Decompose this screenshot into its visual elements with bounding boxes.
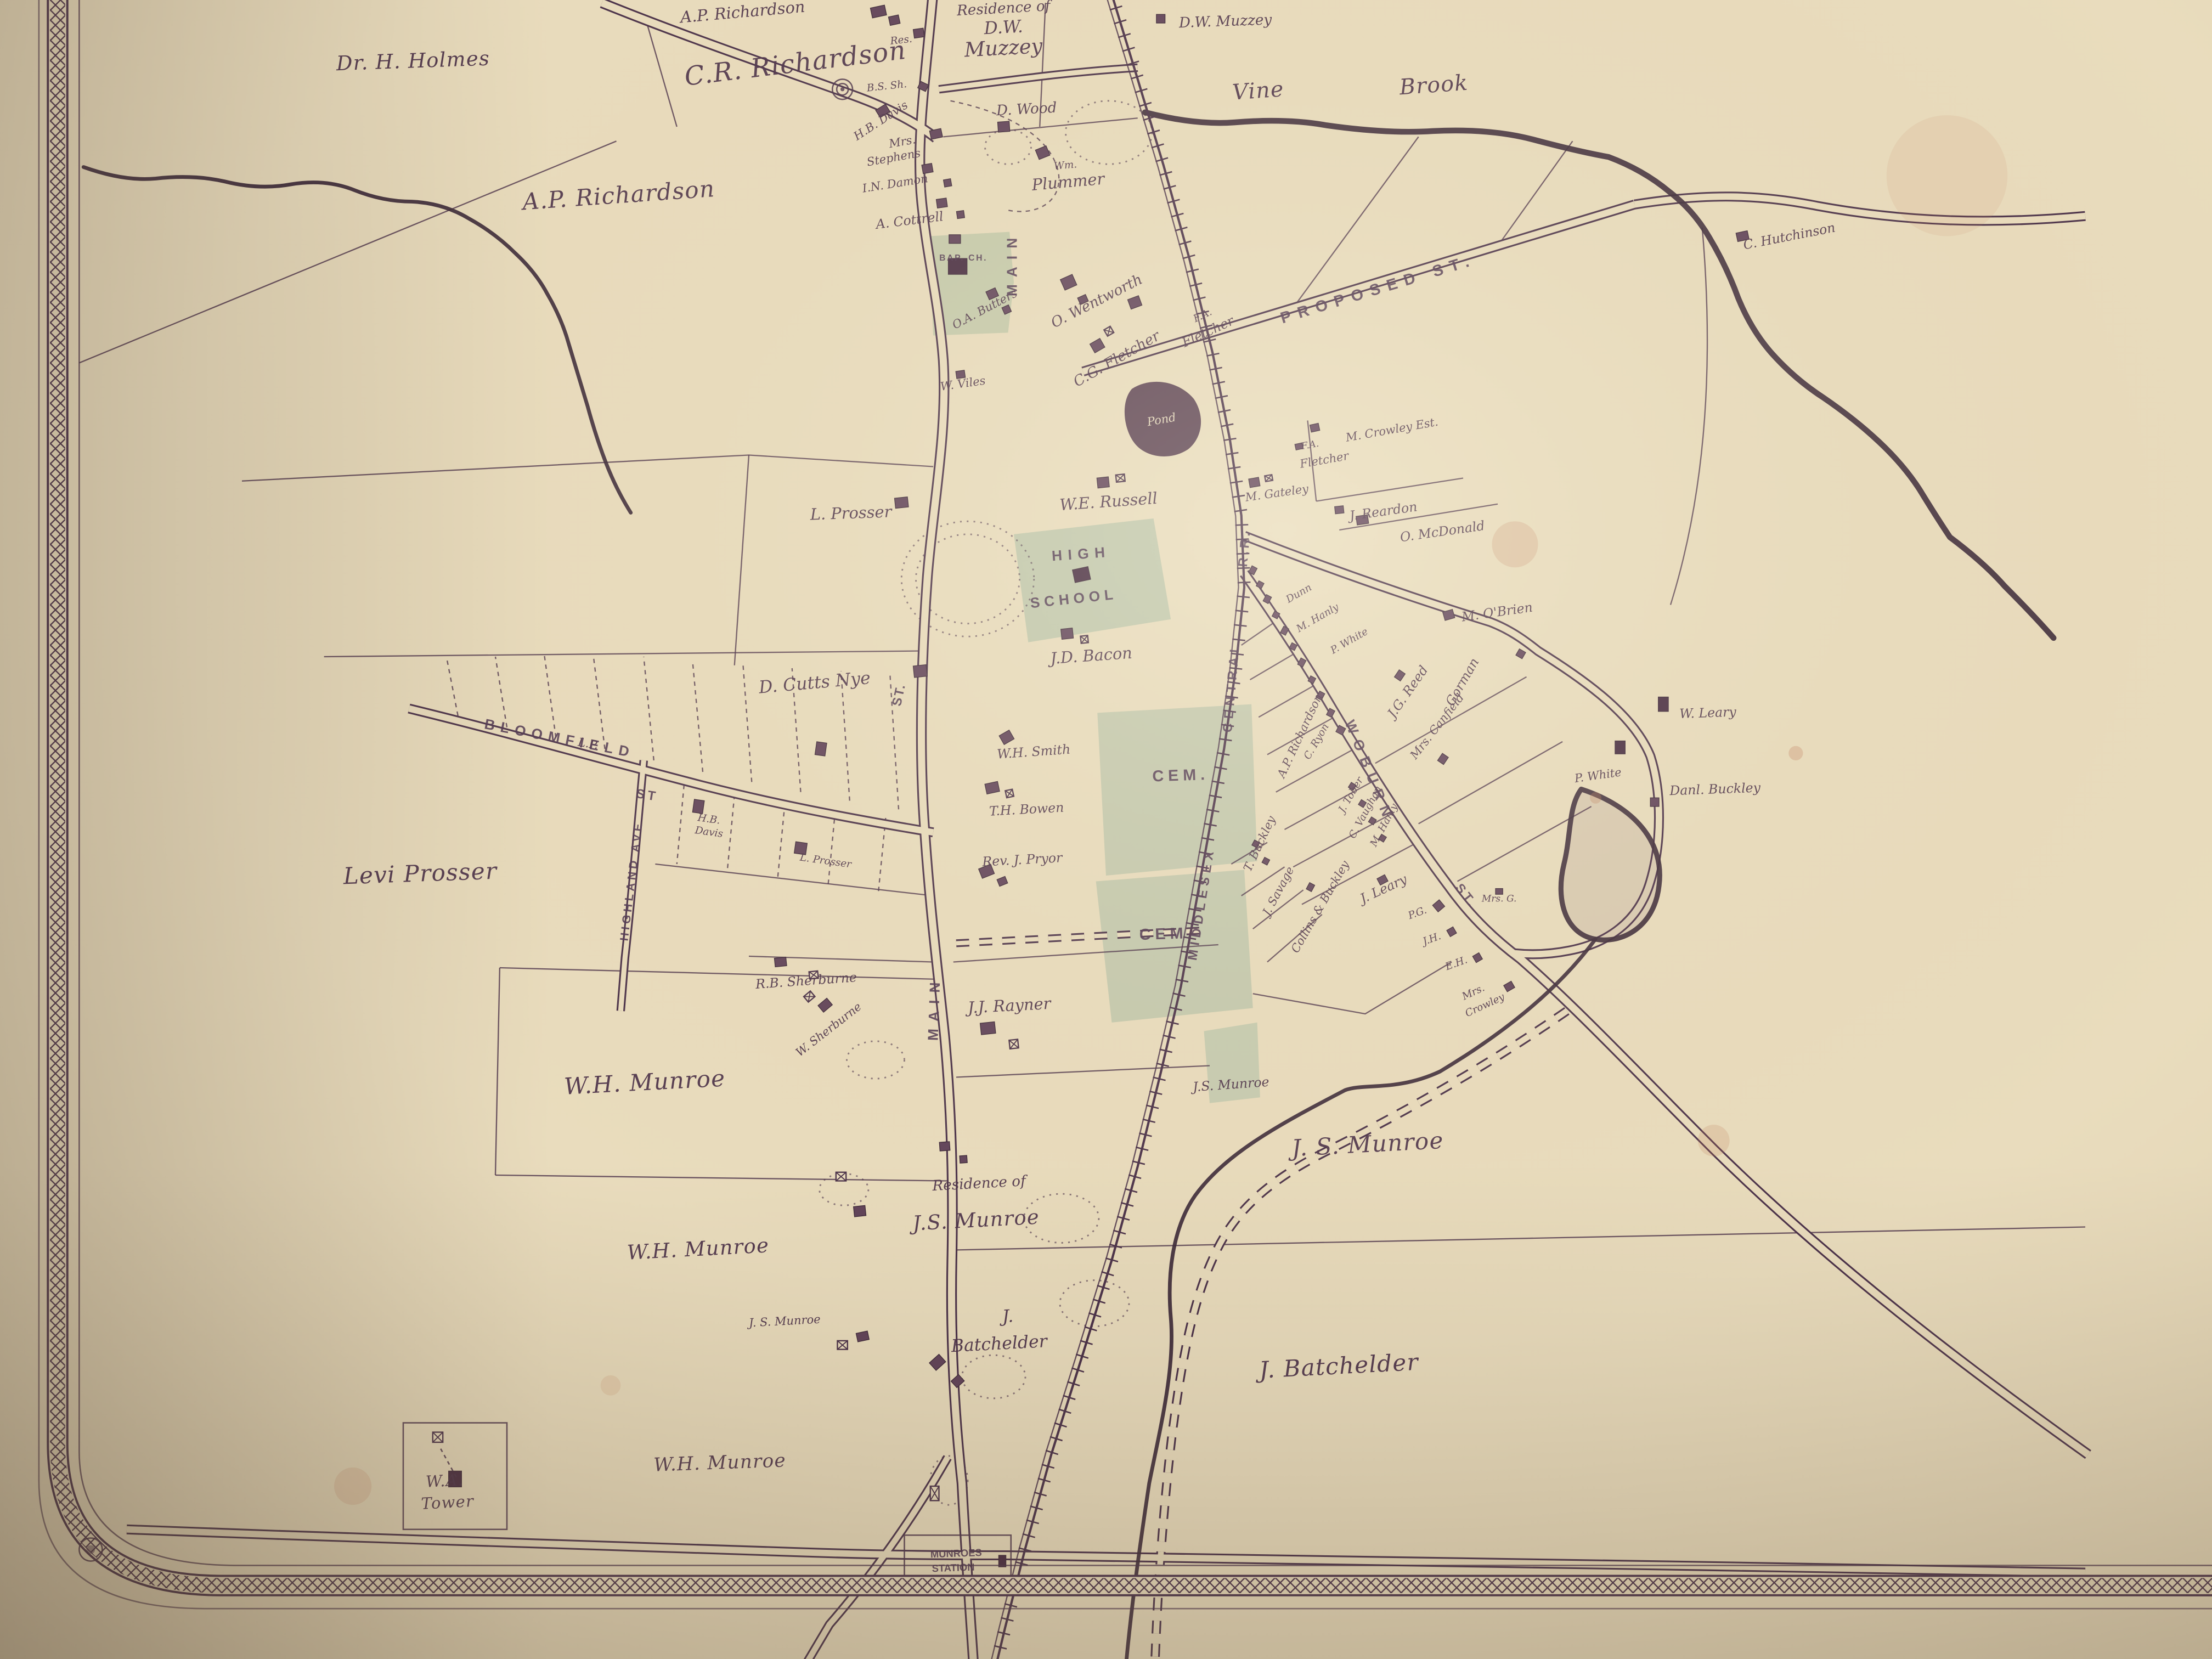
- map-photo: A.P. RichardsonDr. H. HolmesC.R. Richard…: [0, 0, 2212, 1659]
- atlas-map-sheet: A.P. RichardsonDr. H. HolmesC.R. Richard…: [0, 0, 2212, 1659]
- photo-shadow-bottom: [0, 0, 2212, 1659]
